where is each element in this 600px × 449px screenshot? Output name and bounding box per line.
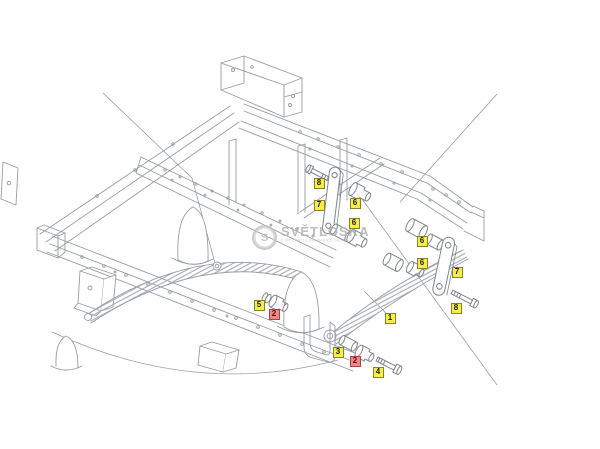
- rear-crossmember: [221, 56, 302, 117]
- callout-5-ring[interactable]: 5: [254, 300, 265, 311]
- parts-diagram-page: S SVĚTLOSKA SVĚT ČÁSTI K NÁHRADNÍM DÍLŮM…: [0, 0, 600, 449]
- callout-6-bushing-b[interactable]: 6: [349, 218, 360, 229]
- callout-8-bolt-lower[interactable]: 8: [451, 303, 462, 314]
- bump-stop-left: [172, 207, 221, 270]
- callout-6-bushing-a[interactable]: 6: [350, 198, 361, 209]
- sleeve-6-d: [381, 252, 404, 273]
- callout-2-bushing-left[interactable]: 2: [269, 309, 280, 320]
- callout-3-sleeve[interactable]: 3: [333, 347, 344, 358]
- callout-2-bushing-right[interactable]: 2: [350, 356, 361, 367]
- callout-4-bolt[interactable]: 4: [373, 367, 384, 378]
- callout-7-shackle-lower[interactable]: 7: [452, 267, 463, 278]
- callout-8-bolt-upper[interactable]: 8: [314, 178, 325, 189]
- callout-6-bushing-c[interactable]: 6: [417, 236, 428, 247]
- frame-rail-right: [239, 104, 484, 241]
- chassis-line-drawing: [0, 0, 600, 449]
- bump-stop-small: [51, 336, 82, 370]
- callout-7-shackle-upper[interactable]: 7: [314, 200, 325, 211]
- callout-1-leaf-spring[interactable]: 1: [385, 313, 396, 324]
- callout-6-bushing-d[interactable]: 6: [417, 258, 428, 269]
